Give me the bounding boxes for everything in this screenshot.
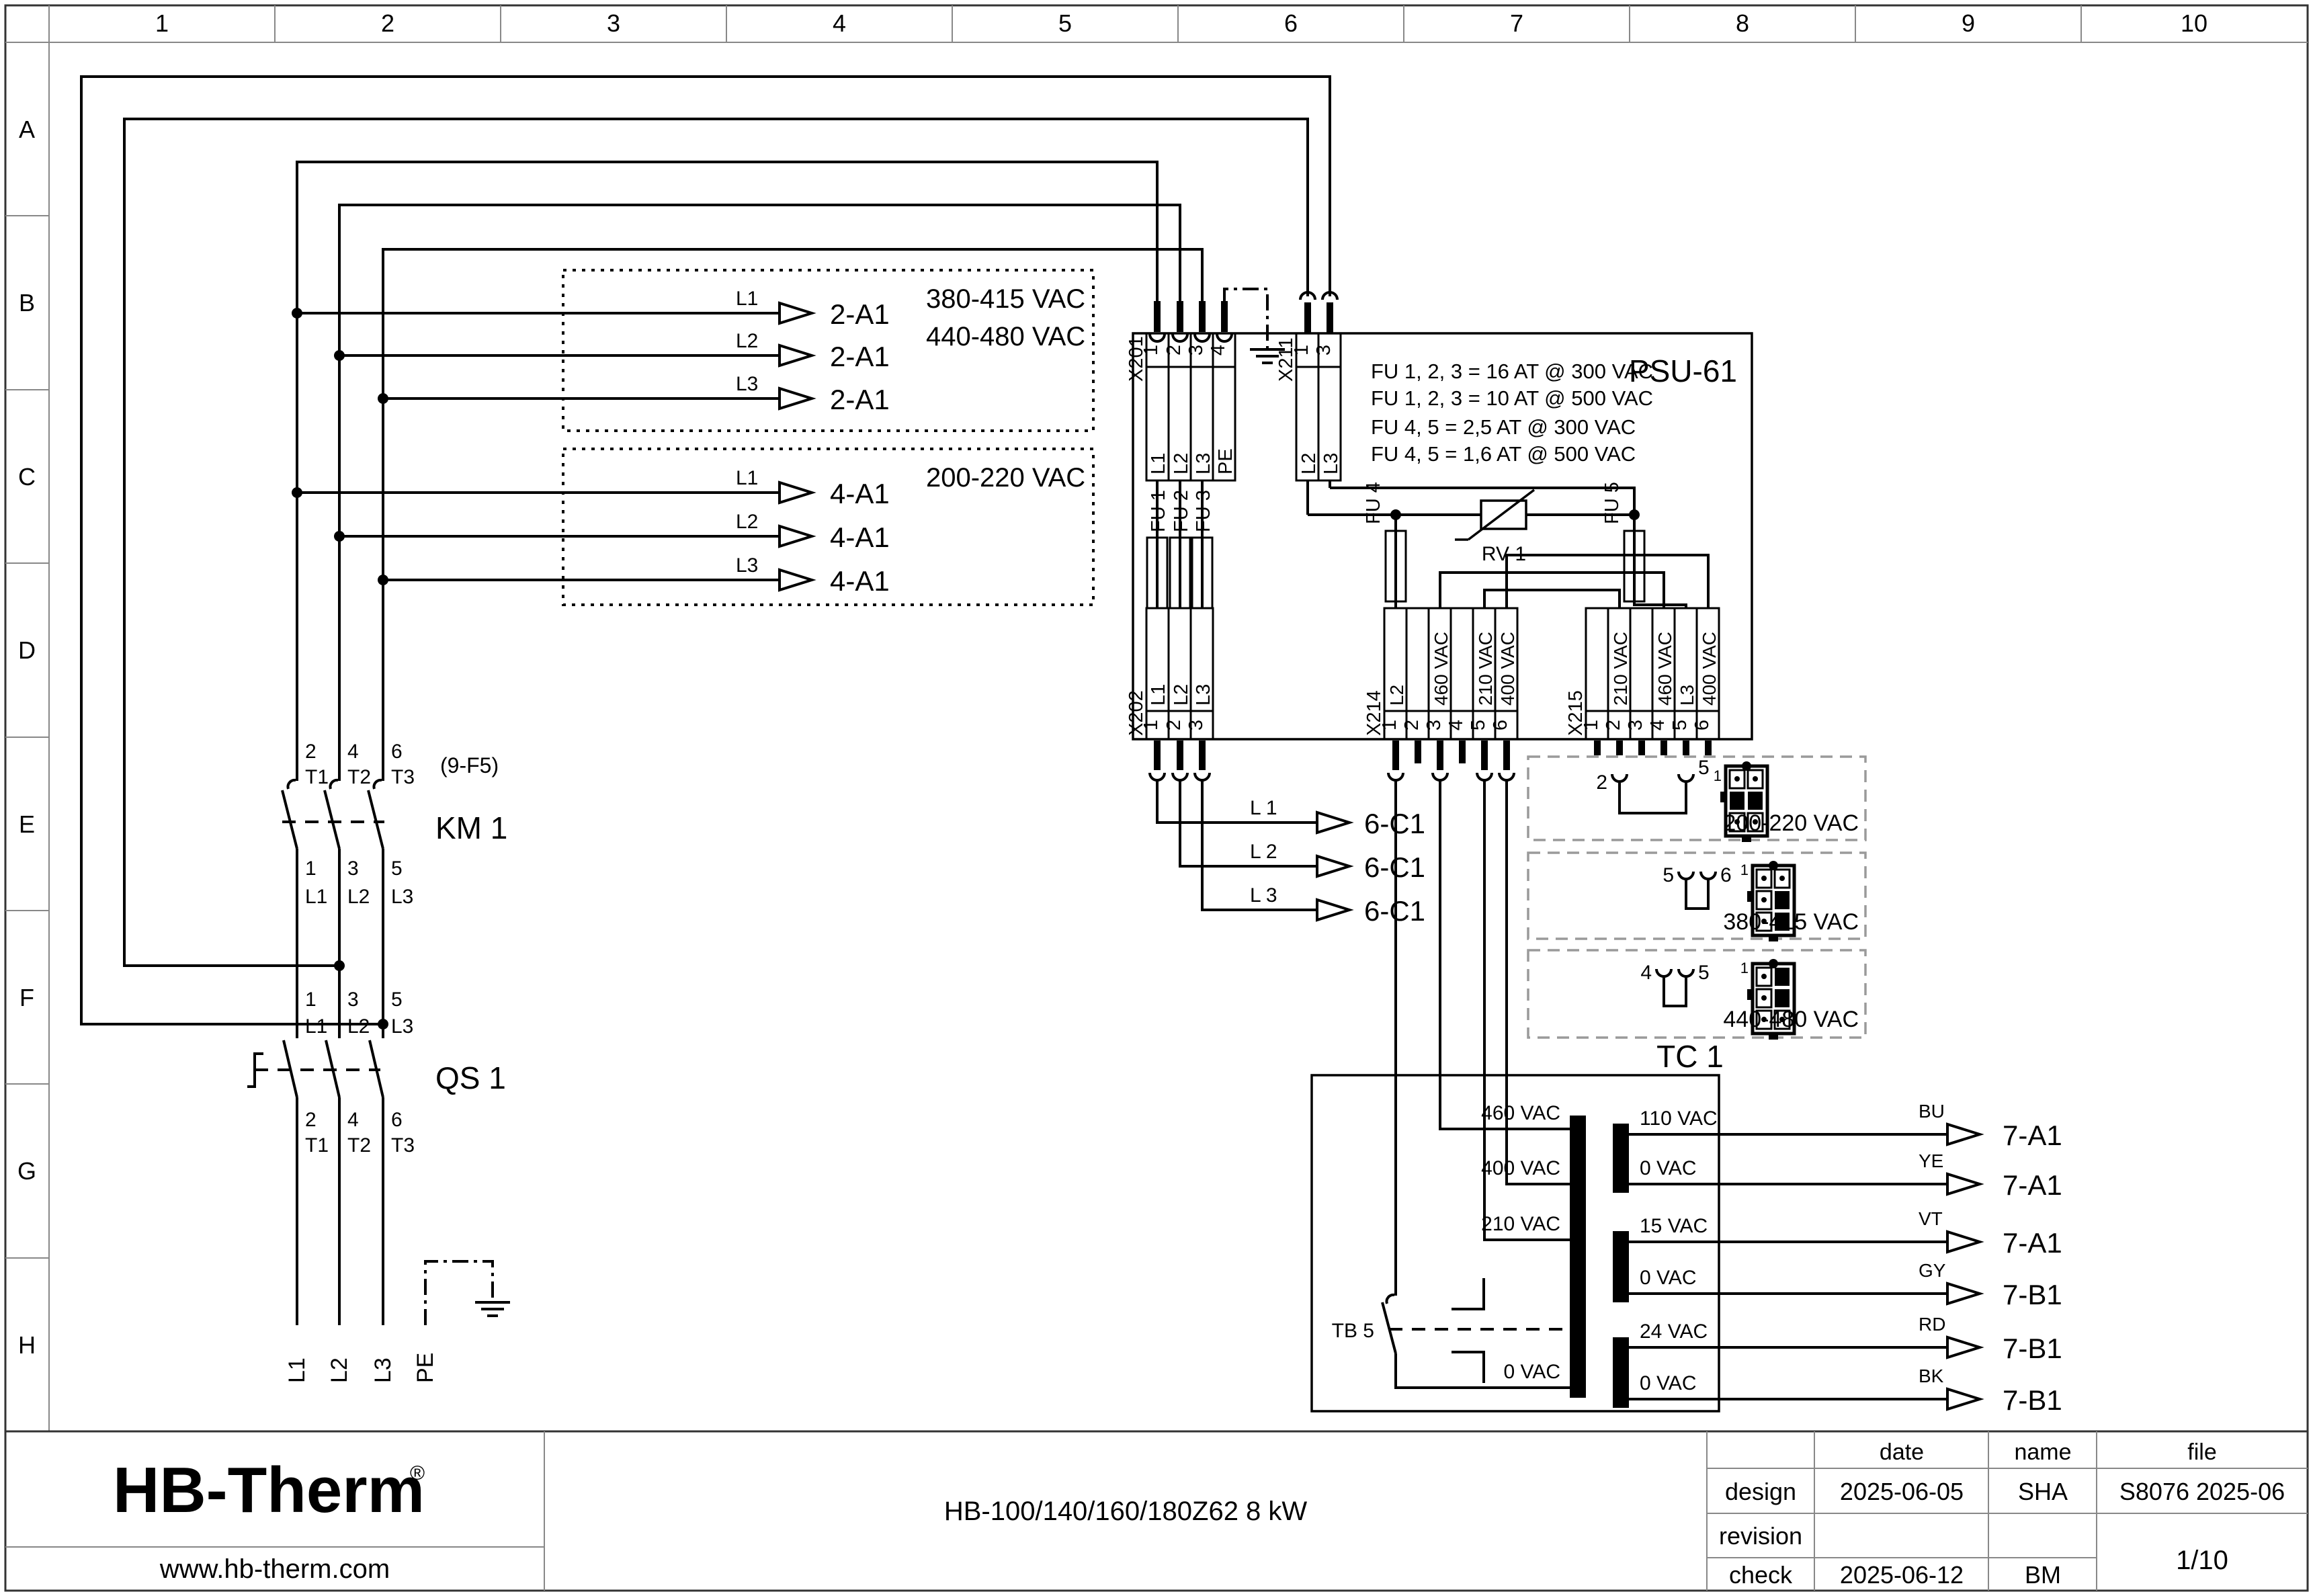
col-label: 6 [1284, 9, 1298, 37]
fuse-label: FU 4 [1363, 482, 1384, 524]
psu-61: PSU-61 FU 1, 2, 3 = 16 AT @ 300 VAC FU 1… [1126, 289, 1752, 780]
wire-ref: 4-A1 [830, 565, 890, 597]
col-header-name: name [2014, 1439, 2071, 1465]
wire-ref: 7-A1 [2003, 1120, 2062, 1151]
wire-ref: 2-A1 [830, 384, 890, 415]
fuse-note: FU 4, 5 = 2,5 AT @ 300 VAC [1371, 415, 1636, 439]
wire-ref: 7-B1 [2003, 1279, 2062, 1310]
col-label: 1 [155, 9, 169, 37]
col-label: 2 [381, 9, 394, 37]
pin-no: 2 [1163, 720, 1185, 730]
terminal-no: 3 [347, 989, 359, 1011]
col-label: 3 [607, 9, 620, 37]
jumper-pin: 4 [1640, 962, 1652, 984]
plug-contact-icon [1150, 741, 1210, 780]
wire-ref: 6-C1 [1364, 895, 1425, 927]
terminal-name: L1 [305, 886, 327, 908]
coding-box-380-415: 5 6 1 380-415 VAC [1528, 853, 1865, 941]
col-header-file: file [2187, 1439, 2216, 1465]
feeder-label: PE [413, 1353, 438, 1383]
wire-color: RD [1919, 1314, 1945, 1335]
tap-label: 15 VAC [1640, 1215, 1708, 1237]
pin-name: L3 [1320, 453, 1342, 474]
pin-name: L3 [1193, 453, 1214, 474]
wire-ref: 7-A1 [2003, 1169, 2062, 1201]
voltage-range: 440-480 VAC [926, 322, 1085, 351]
row-label: D [18, 636, 36, 664]
contactor-km1: 2 4 6 T1 T2 T3 1 3 5 L1 L2 L3 (9-F5) KM … [282, 741, 507, 908]
pin-no: 2 [1603, 720, 1624, 730]
pin-no: 1 [1291, 345, 1312, 355]
pin-no: 3 [1313, 345, 1335, 355]
signal-arrow-icon [1317, 812, 1349, 920]
wire-ref: 4-A1 [830, 478, 890, 509]
jumper-pin: 5 [1698, 757, 1710, 779]
plug-contact-icon [1388, 741, 1514, 780]
coding-box-200-220: 2 5 1 200-220 VAC [1528, 757, 1865, 842]
phase-label: L1 [736, 467, 758, 489]
fuse-label: FU 5 [1601, 482, 1623, 524]
terminal-no: 4 [347, 741, 359, 763]
terminal-name: T3 [391, 766, 415, 788]
terminal-no: 6 [391, 741, 403, 763]
fuse-label: FU 2 [1171, 490, 1192, 532]
phase-label: L 1 [1250, 797, 1277, 819]
fuse-note: FU 1, 2, 3 = 10 AT @ 500 VAC [1371, 386, 1653, 410]
outputs-7: BU YE VT GY RD BK 7-A1 7-A1 7-A1 7-B1 7-… [1919, 1101, 2062, 1416]
varistor-rv1: RV 1 [1455, 490, 1534, 565]
supply-feeders: L1 L2 L3 PE [284, 1261, 510, 1383]
tap-label: 210 VAC [1481, 1213, 1560, 1235]
terminal-no: 6 [391, 1109, 403, 1131]
phase-label: L2 [736, 511, 758, 533]
signal-arrow-icon [780, 482, 812, 590]
pin-no: 5 [1669, 720, 1691, 730]
wire-color: YE [1919, 1150, 1943, 1171]
brand-logo-text: HB-Therm [113, 1454, 425, 1526]
pin-name: PE [1215, 448, 1236, 474]
socket-contact-icon [1300, 292, 1337, 333]
pin-name: L2 [1298, 453, 1320, 474]
document-title: HB-100/140/160/180Z62 8 kW [944, 1497, 1308, 1526]
coding-box-440-480: 4 5 1 440-480 VAC [1528, 950, 1865, 1040]
terminal-name: L2 [347, 886, 370, 908]
fuse-note: FU 4, 5 = 1,6 AT @ 500 VAC [1371, 442, 1636, 466]
row-label: C [18, 463, 36, 491]
pin-name: 460 VAC [1431, 632, 1452, 706]
col-label: 9 [1962, 9, 1975, 37]
col-label: 4 [833, 9, 846, 37]
terminal-block-x201: X201 1 2 3 4 L1 L2 L3 PE [1126, 301, 1236, 480]
wire-color: BU [1919, 1101, 1945, 1122]
brand-logo: HB-Therm ® [113, 1454, 425, 1526]
switch-qs1: 1 3 5 L1 L2 L3 2 4 6 T1 T2 T3 QS 1 [247, 989, 506, 1157]
tap-label: 0 VAC [1504, 1361, 1560, 1383]
pin-no: 4 [1647, 720, 1669, 730]
pin1-marker: 1 [1740, 960, 1749, 976]
signal-arrow-icon [1947, 1124, 1980, 1409]
jumper-pin: 5 [1663, 864, 1674, 886]
feed-box-hv: L1 L2 L3 2-A1 2-A1 2-A1 380-415 VAC 440-… [563, 270, 1093, 431]
page-number: 1/10 [2176, 1546, 2228, 1575]
terminal-block-x211: X211 1 3 L2 L3 [1275, 292, 1342, 480]
schematic-canvas: 1 2 3 4 5 6 7 8 9 10 A B C D E F G H L1 … [0, 0, 2313, 1596]
terminal-no: 2 [305, 741, 317, 763]
transformer-tc1: TC 1 TB 5 460 VAC 400 VAC 210 VAC 0 VAC … [1312, 1039, 1724, 1411]
pin-no: 1 [1581, 720, 1602, 730]
phase-label: L3 [736, 373, 758, 395]
check-date: 2025-06-12 [1840, 1561, 1964, 1589]
cross-ref: (9-F5) [440, 753, 499, 778]
row-label: F [19, 984, 34, 1011]
registered-mark: ® [410, 1462, 425, 1484]
terminal-name: T2 [347, 1134, 371, 1157]
phase-label: L1 [736, 288, 758, 310]
block-label: X211 [1275, 337, 1297, 382]
tap-label: 0 VAC [1640, 1157, 1696, 1179]
tap-label: 0 VAC [1640, 1372, 1696, 1394]
phase-label: L 2 [1250, 841, 1277, 863]
row-label: E [19, 810, 35, 838]
signal-arrow-icon [780, 303, 812, 409]
terminal-name: L2 [347, 1015, 370, 1038]
earth-ground-icon [475, 1302, 510, 1316]
voltage-range: 440-480 VAC [1723, 1007, 1859, 1032]
wire-ref: 2-A1 [830, 341, 890, 372]
pin-no: 2 [1163, 345, 1185, 355]
design-date: 2025-06-05 [1840, 1478, 1964, 1505]
terminal-no: 2 [305, 1109, 317, 1131]
terminal-name: T1 [305, 766, 329, 788]
tap-label: 110 VAC [1640, 1107, 1718, 1130]
terminal-name: T2 [347, 766, 371, 788]
file-number: S8076 2025-06 [2119, 1478, 2285, 1505]
terminal-name: T3 [391, 1134, 415, 1157]
wire-ref: 7-B1 [2003, 1333, 2062, 1364]
terminal-block-x214: X214 L2 460 VAC 210 VAC 400 VAC 1 2 3 4 … [1363, 608, 1518, 780]
pin-no: 5 [1468, 720, 1489, 730]
jumper-pin: 5 [1698, 962, 1710, 984]
wire-color: GY [1919, 1260, 1946, 1281]
pin-name: L3 [1677, 685, 1697, 706]
pin-no: 1 [1140, 720, 1162, 730]
terminal-name: L3 [391, 1015, 413, 1038]
jumper-pin: 2 [1596, 771, 1607, 794]
col-label: 10 [2181, 9, 2207, 37]
pin-no: 3 [1185, 720, 1207, 730]
row-label: G [17, 1157, 36, 1185]
terminal-no: 1 [305, 857, 317, 880]
wire-ref: 4-A1 [830, 521, 890, 553]
terminal-no: 1 [305, 989, 317, 1011]
feeder-label: L3 [370, 1357, 396, 1383]
pin-name: 400 VAC [1497, 632, 1518, 706]
pin-name: 210 VAC [1610, 632, 1631, 706]
pin-name: L3 [1193, 684, 1214, 706]
fuse-fu4: FU 4 [1363, 482, 1406, 601]
row-label: H [18, 1331, 36, 1359]
pin-name: L1 [1148, 453, 1169, 474]
pin-no: 4 [1208, 345, 1229, 355]
terminal-no: 5 [391, 857, 403, 880]
plug-contact-icon [1594, 741, 1712, 755]
title-block: HB-Therm ® www.hb-therm.com HB-100/140/1… [5, 1431, 2308, 1591]
pin-name: L2 [1171, 453, 1192, 474]
voltage-range: 200-220 VAC [1723, 810, 1859, 836]
pin-no: 1 [1379, 720, 1400, 730]
pin-no: 2 [1401, 720, 1423, 730]
component-name: TC 1 [1656, 1039, 1724, 1074]
block-label: X201 [1126, 336, 1147, 382]
pin1-marker: 1 [1740, 862, 1749, 878]
fuse-label: FU 3 [1193, 490, 1214, 532]
pin-no: 3 [1185, 345, 1207, 355]
check-name: BM [2025, 1561, 2061, 1589]
component-name: QS 1 [435, 1060, 506, 1095]
design-name: SHA [2018, 1478, 2068, 1505]
row-label-revision: revision [1719, 1522, 1802, 1550]
phase-label: L 3 [1250, 884, 1277, 907]
voltage-range: 200-220 VAC [926, 463, 1085, 493]
row-label-design: design [1725, 1478, 1796, 1505]
transformer-core-icon [1570, 1116, 1629, 1408]
wire-color: VT [1919, 1208, 1943, 1229]
pin-name: L1 [1148, 684, 1169, 706]
col-label: 8 [1736, 9, 1749, 37]
varistor-label: RV 1 [1482, 543, 1526, 565]
terminal-no: 5 [391, 989, 403, 1011]
col-header-date: date [1880, 1439, 1924, 1465]
terminal-name: L3 [391, 886, 413, 908]
brand-url: www.hb-therm.com [159, 1554, 390, 1584]
tap-label: 460 VAC [1481, 1102, 1560, 1124]
fuse-note: FU 1, 2, 3 = 16 AT @ 300 VAC [1371, 360, 1653, 383]
pin-name: L2 [1171, 684, 1192, 706]
terminal-name: L1 [305, 1015, 327, 1038]
jumper-pin: 6 [1720, 864, 1732, 886]
pin-no: 4 [1445, 720, 1467, 730]
pin-name: 210 VAC [1475, 632, 1496, 706]
voltage-range: 380-415 VAC [926, 284, 1085, 314]
wire-ref: 2-A1 [830, 298, 890, 330]
tap-label: 400 VAC [1481, 1157, 1560, 1179]
outputs-6c1: L 1 L 2 L 3 6-C1 6-C1 6-C1 [1250, 797, 1425, 927]
pin-name: 460 VAC [1654, 632, 1675, 706]
tap-label: 0 VAC [1640, 1267, 1696, 1289]
pin-no: 3 [1423, 720, 1445, 730]
row-label: A [19, 116, 35, 143]
breaker-label: TB 5 [1332, 1320, 1374, 1342]
col-label: 7 [1510, 9, 1523, 37]
component-name: KM 1 [435, 810, 507, 845]
pin-no: 3 [1625, 720, 1646, 730]
terminal-no: 3 [347, 857, 359, 880]
row-label-check: check [1729, 1561, 1793, 1589]
terminal-block-x202: X202 L1 L2 L3 1 2 3 [1126, 608, 1214, 780]
wire-ref: 7-B1 [2003, 1384, 2062, 1416]
fuse-label: FU 1 [1148, 490, 1169, 532]
feeder-label: L2 [327, 1357, 352, 1383]
terminal-block-x215: X215 210 VAC 460 VAC L3 400 VAC 1 2 3 4 … [1565, 608, 1720, 755]
tap-label: 24 VAC [1640, 1320, 1708, 1343]
pin-name: 400 VAC [1699, 632, 1720, 706]
row-label: B [19, 289, 35, 317]
terminal-name: T1 [305, 1134, 329, 1157]
column-ruler: 1 2 3 4 5 6 7 8 9 10 [155, 9, 2207, 37]
pin-no: 6 [1490, 720, 1511, 730]
power-wiring [81, 77, 1947, 1399]
pin-no: 6 [1691, 720, 1713, 730]
col-label: 5 [1058, 9, 1072, 37]
feed-box-lv: L1 L2 L3 4-A1 4-A1 4-A1 200-220 VAC [563, 449, 1093, 605]
wire-ref: 6-C1 [1364, 851, 1425, 883]
voltage-range: 380-415 VAC [1723, 909, 1859, 935]
wire-ref: 7-A1 [2003, 1227, 2062, 1259]
wire-ref: 6-C1 [1364, 808, 1425, 839]
phase-label: L3 [736, 554, 758, 577]
fuse-fu5: FU 5 [1601, 482, 1644, 601]
pin-no: 1 [1140, 345, 1162, 355]
wire-color: BK [1919, 1366, 1944, 1386]
phase-label: L2 [736, 330, 758, 352]
pin-name: L2 [1386, 685, 1407, 706]
pin1-marker: 1 [1714, 767, 1722, 784]
terminal-no: 4 [347, 1109, 359, 1131]
feeder-label: L1 [284, 1357, 310, 1383]
